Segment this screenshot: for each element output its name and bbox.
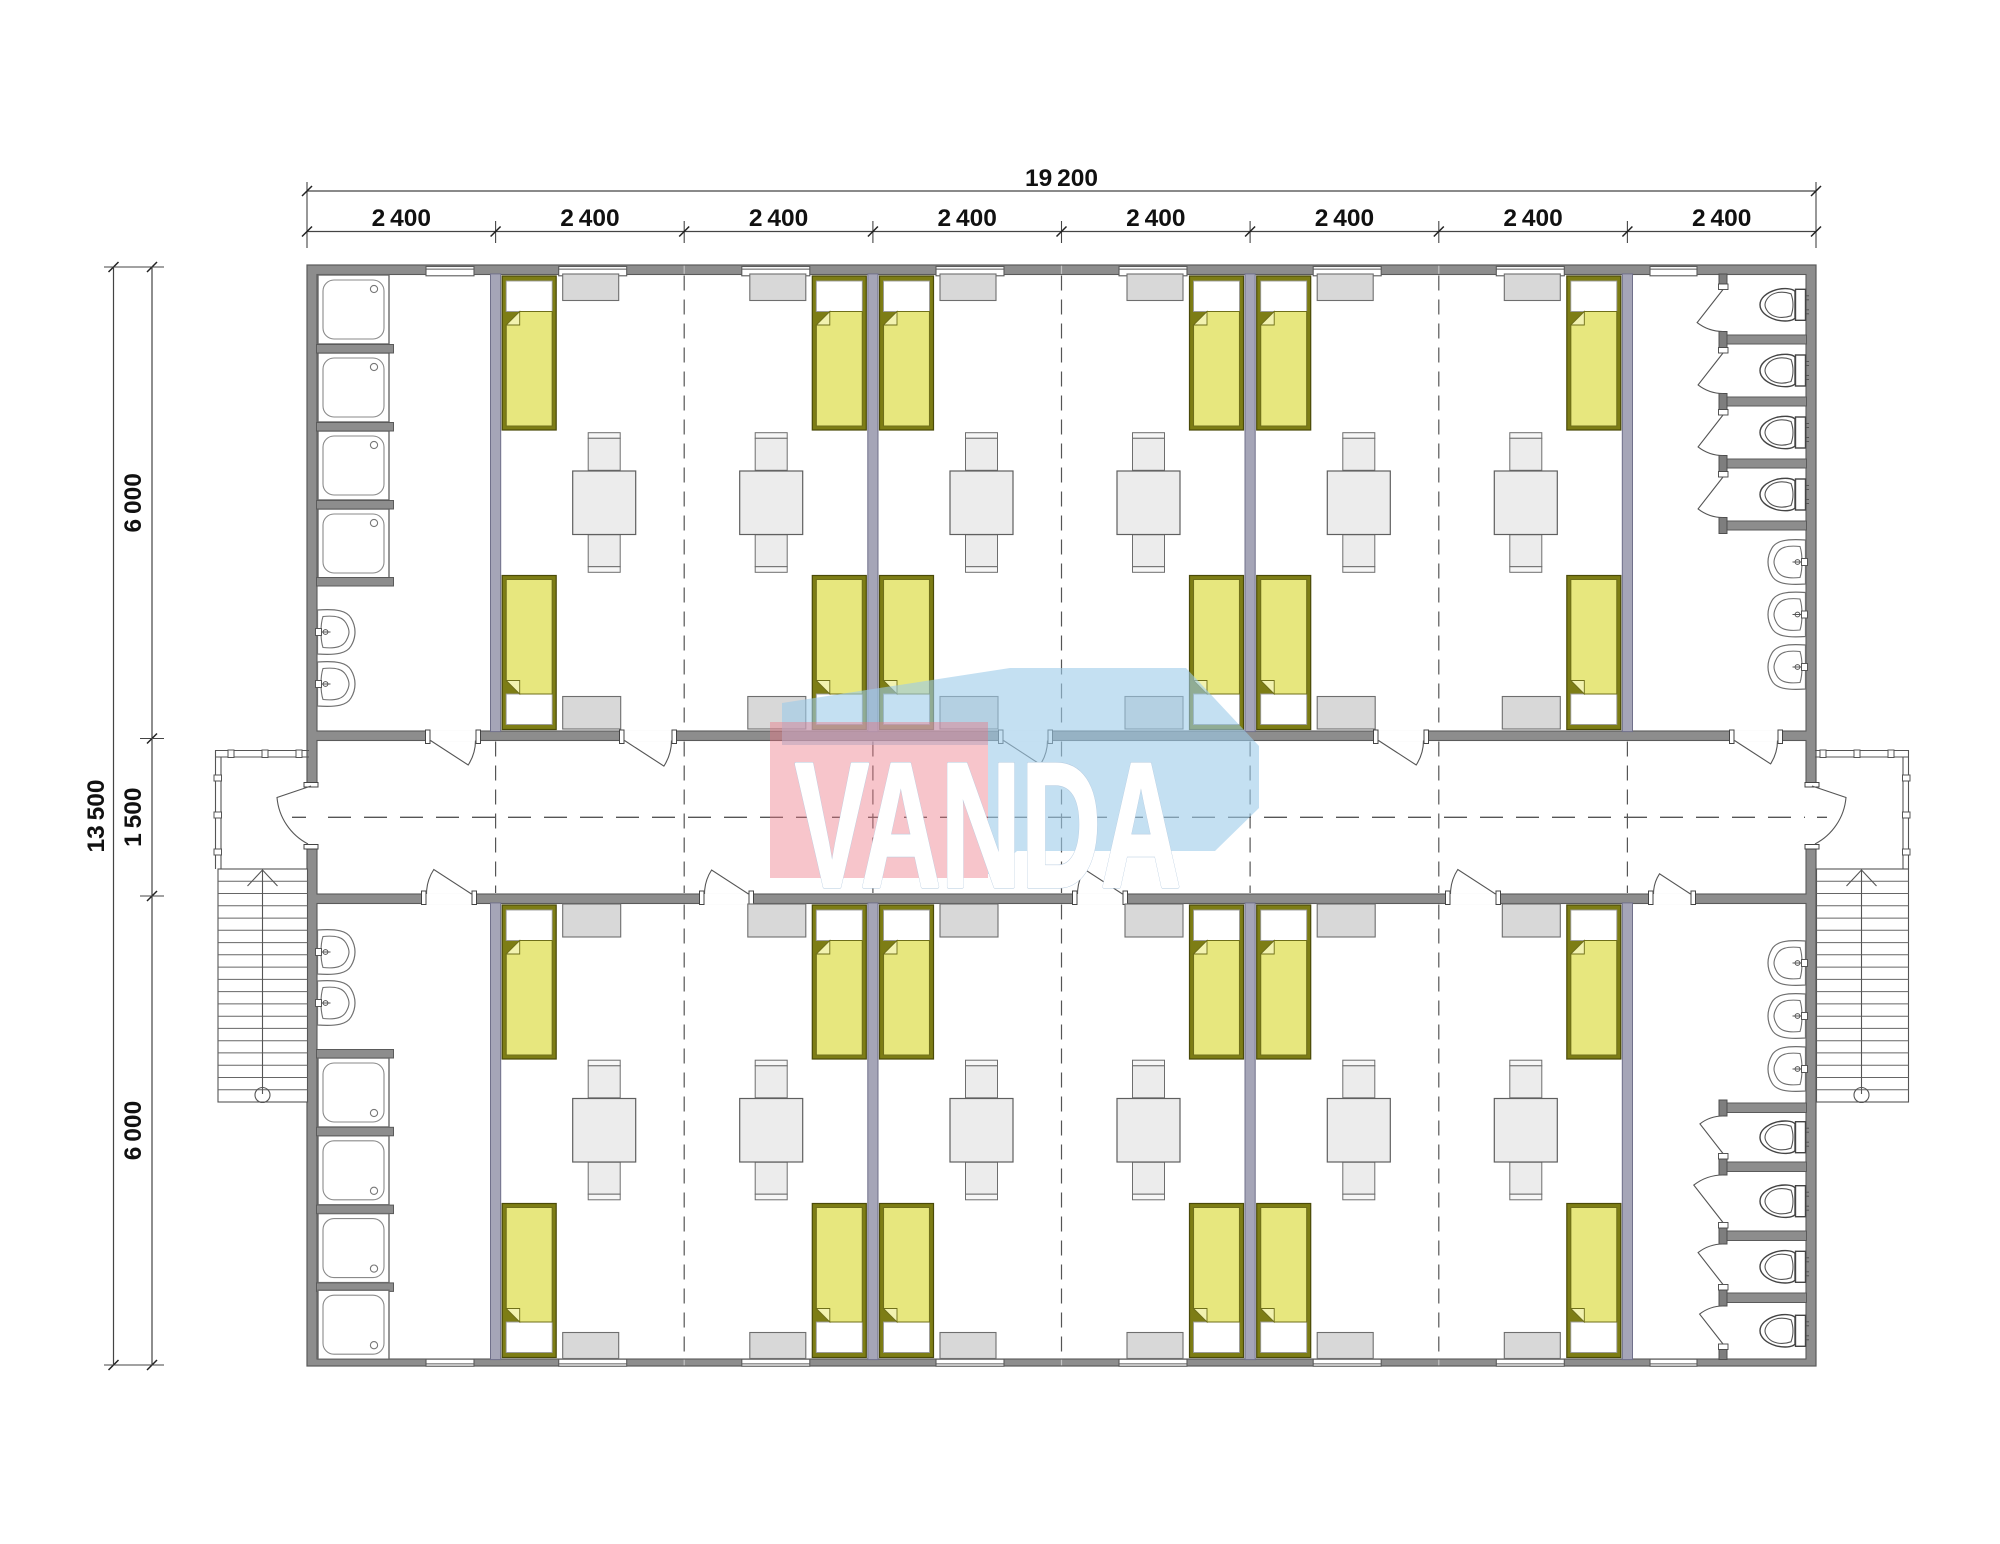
svg-text:2 400: 2 400 xyxy=(560,205,619,232)
svg-text:2 400: 2 400 xyxy=(749,205,808,232)
svg-text:2 400: 2 400 xyxy=(1503,205,1562,232)
svg-text:6 000: 6 000 xyxy=(120,1101,147,1160)
svg-text:13 500: 13 500 xyxy=(83,779,110,852)
svg-text:VANDA: VANDA xyxy=(795,726,1181,925)
svg-text:2 400: 2 400 xyxy=(1126,205,1185,232)
svg-text:2 400: 2 400 xyxy=(1692,205,1751,232)
svg-text:2 400: 2 400 xyxy=(372,205,431,232)
svg-text:1 500: 1 500 xyxy=(120,787,147,846)
svg-text:6 000: 6 000 xyxy=(120,473,147,532)
svg-text:19 200: 19 200 xyxy=(1025,165,1098,192)
svg-text:2 400: 2 400 xyxy=(937,205,996,232)
svg-text:2 400: 2 400 xyxy=(1315,205,1374,232)
